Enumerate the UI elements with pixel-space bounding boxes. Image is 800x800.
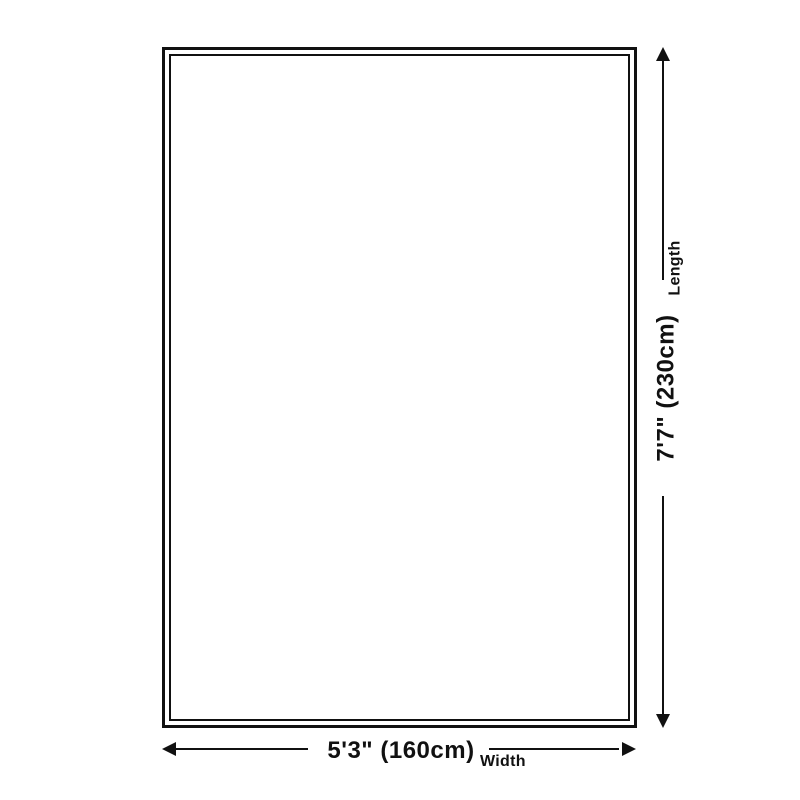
rug-outline <box>162 47 637 728</box>
length-value: 7'7" (230cm) <box>648 311 686 465</box>
width-axis-label: Width <box>480 753 526 771</box>
arrow-right-icon <box>622 742 636 756</box>
length-dimension-line-bottom <box>662 496 664 714</box>
rug-inner-border <box>169 54 630 721</box>
length-axis-label: Length <box>664 240 688 296</box>
rug-dimension-diagram: Length 7'7" (230cm) 5'3" (160cm) Width <box>0 0 800 800</box>
arrow-left-icon <box>162 742 176 756</box>
length-value-text: 7'7" (230cm) <box>653 314 681 461</box>
arrow-down-icon <box>656 714 670 728</box>
width-dimension-line-left <box>175 748 308 750</box>
width-value: 5'3" (160cm) <box>318 736 484 765</box>
length-axis-label-text: Length <box>667 240 685 295</box>
width-dimension-line-right <box>489 748 619 750</box>
